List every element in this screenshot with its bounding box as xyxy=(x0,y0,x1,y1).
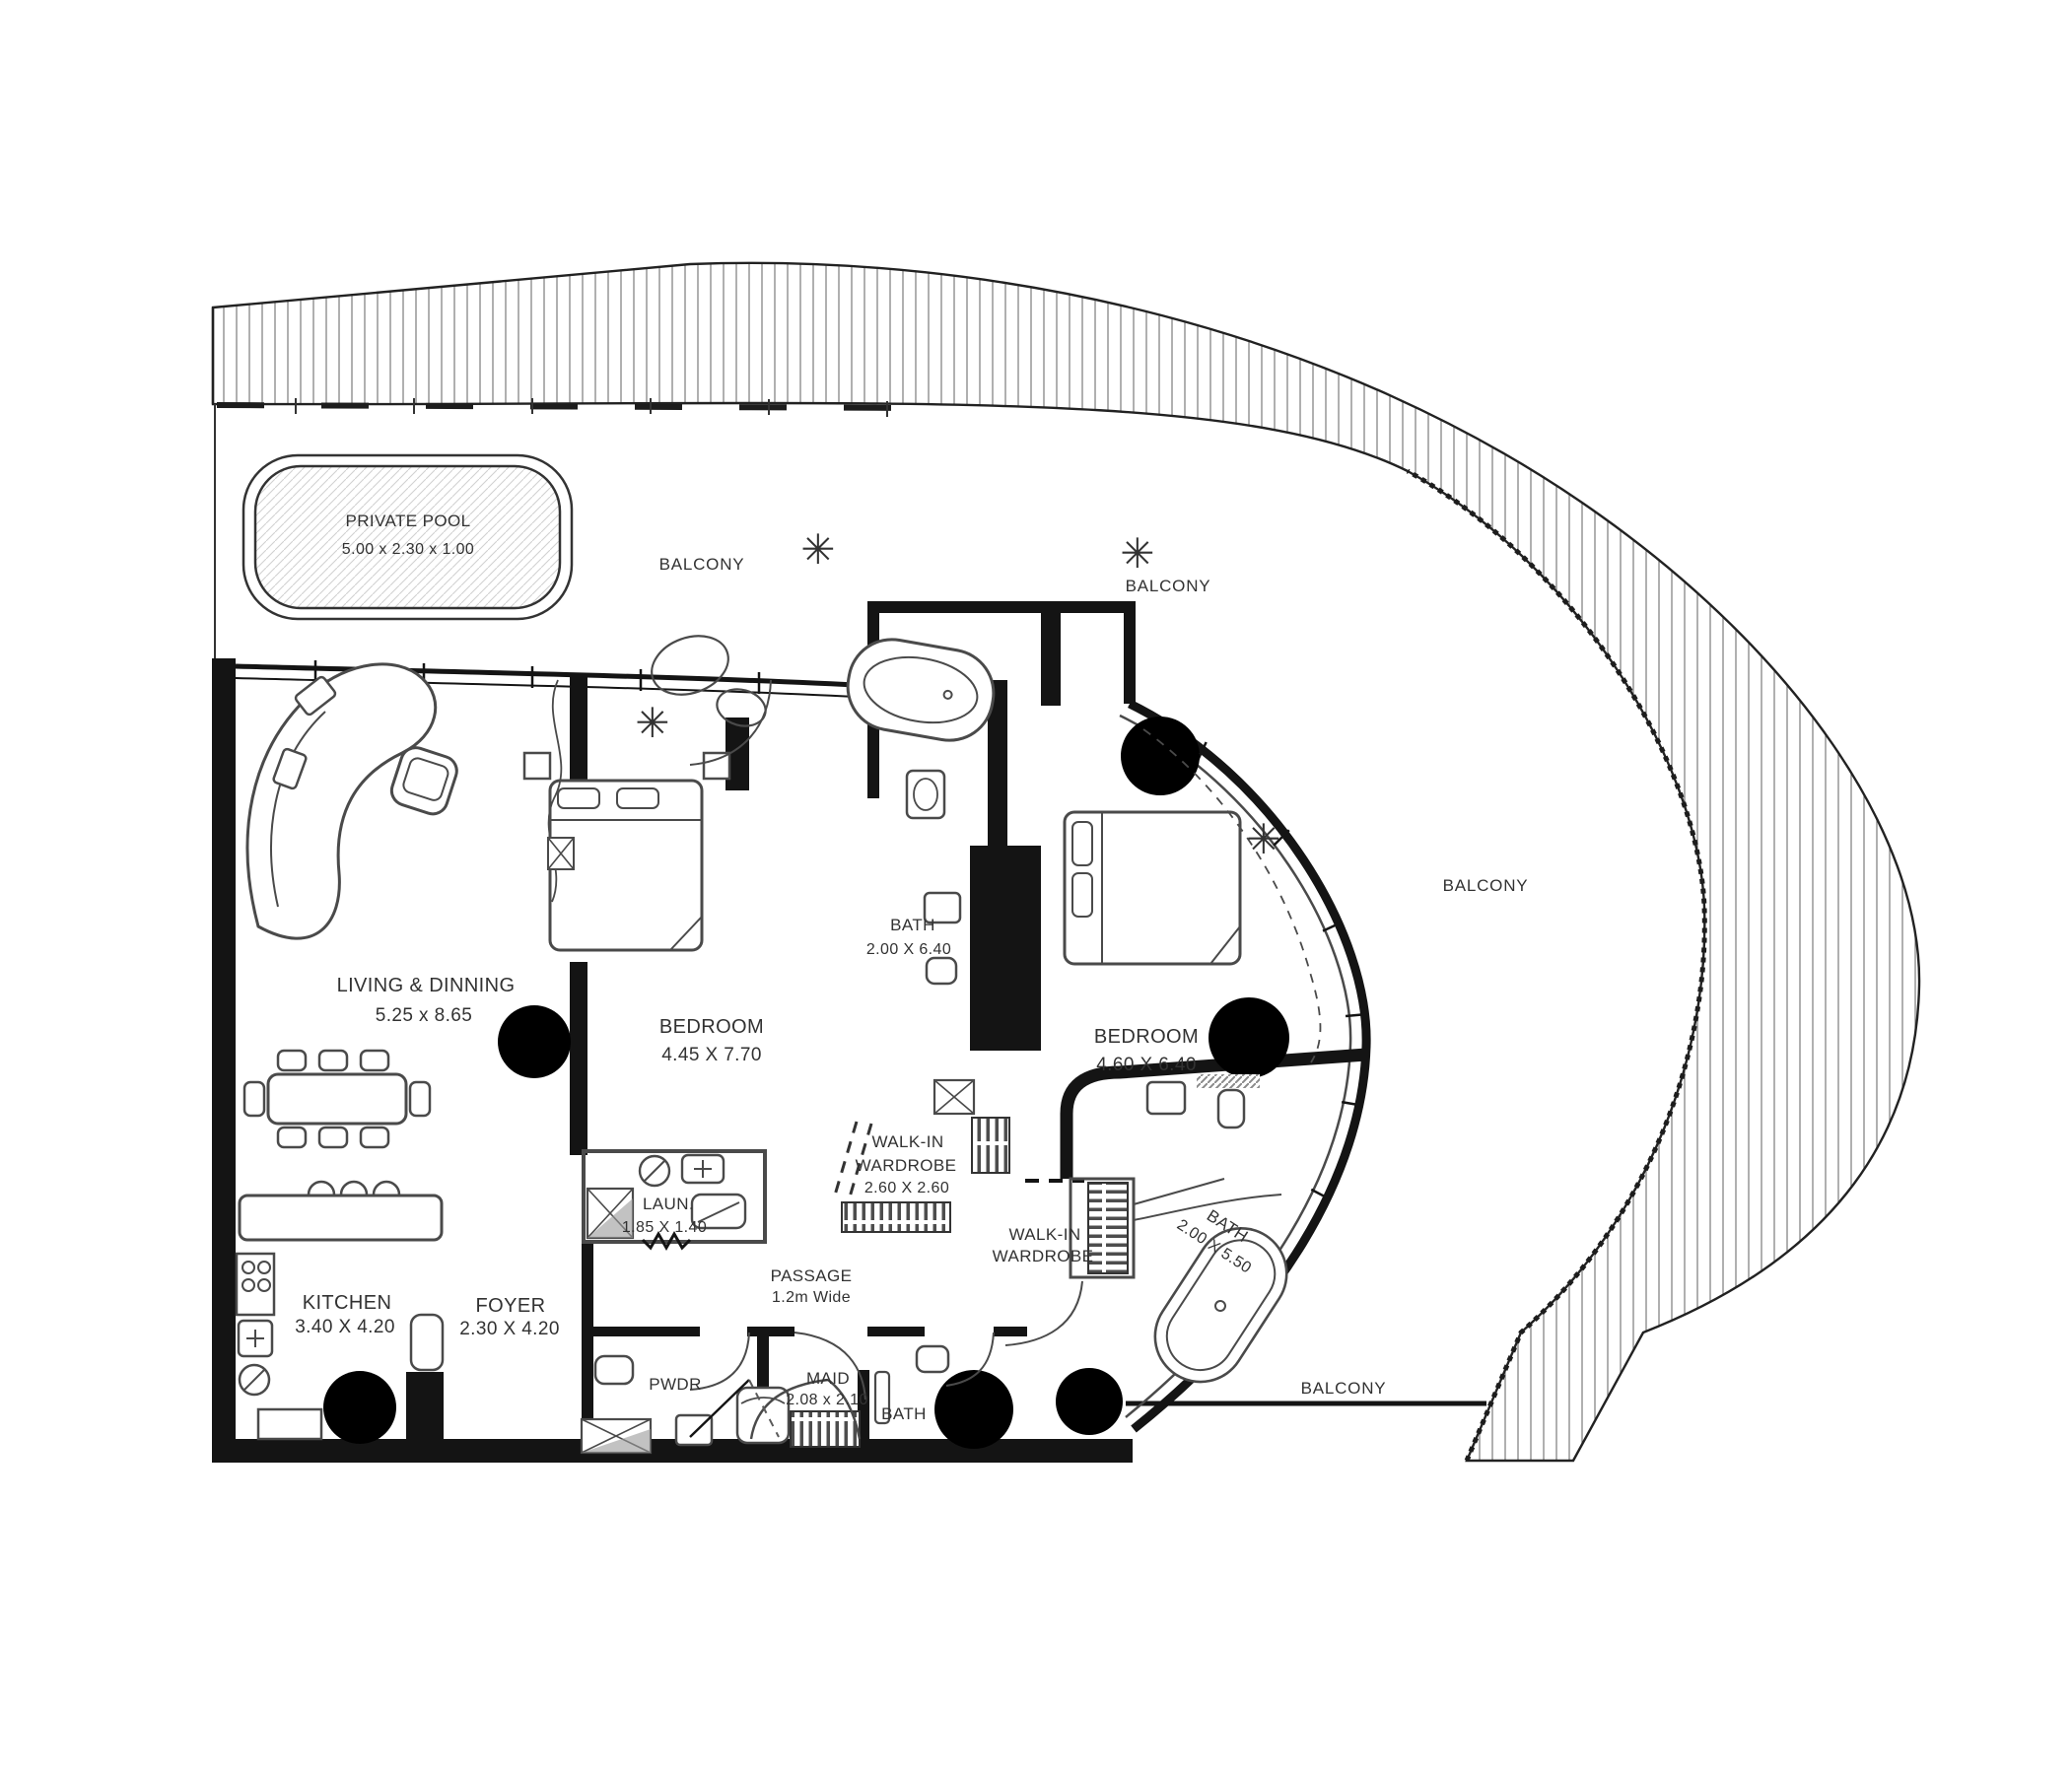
bedroom1-label: BEDROOM xyxy=(659,1016,764,1038)
bedroom2-label: BEDROOM xyxy=(1094,1026,1199,1048)
dining-table-set xyxy=(244,1051,430,1147)
pool-dims: 5.00 x 2.30 x 1.00 xyxy=(342,541,474,558)
toilet xyxy=(927,958,956,984)
toilet xyxy=(1218,1090,1244,1128)
toilet xyxy=(917,1346,948,1372)
column xyxy=(1056,1368,1123,1435)
bath2-room xyxy=(1138,1211,1304,1400)
column xyxy=(498,1005,571,1078)
laundry-label: LAUN. xyxy=(643,1195,694,1213)
floorplan-page: PRIVATE POOL 5.00 x 2.30 x 1.00 BALCONY … xyxy=(0,0,2072,1777)
balcony-label-right: BALCONY xyxy=(1443,876,1529,895)
balcony-label-bottom: BALCONY xyxy=(1301,1379,1387,1398)
bedroom2-dims: 4.60 X 6.40 xyxy=(1096,1055,1197,1075)
foyer-label: FOYER xyxy=(476,1295,546,1317)
plant-icon: ✳ xyxy=(1246,816,1281,862)
toilet xyxy=(595,1356,633,1384)
bar-stools xyxy=(309,1182,399,1195)
window-sill-hatch xyxy=(1197,1074,1260,1088)
kitchen-dims: 3.40 X 4.20 xyxy=(295,1317,395,1337)
nightstand xyxy=(704,753,729,779)
maid-dims: 2.08 x 2.10 xyxy=(786,1392,868,1408)
door-arc xyxy=(794,1333,865,1400)
maid-label: MAID xyxy=(806,1369,850,1388)
bath3-label: BATH xyxy=(881,1404,927,1423)
bedroom1-dims: 4.45 X 7.70 xyxy=(661,1045,762,1065)
bathtub xyxy=(841,633,1001,747)
column xyxy=(934,1370,1013,1449)
foyer-dims: 2.30 X 4.20 xyxy=(459,1319,560,1339)
column xyxy=(323,1371,396,1444)
maid-room xyxy=(737,1333,865,1447)
balcony-label-top-mid: BALCONY xyxy=(1126,577,1211,595)
kitchen-island xyxy=(240,1196,442,1240)
shower-box xyxy=(582,1419,651,1453)
xbox-cabinet xyxy=(548,838,574,869)
kitchen-label: KITCHEN xyxy=(303,1292,392,1314)
sink xyxy=(1147,1082,1185,1114)
freestanding-tub xyxy=(1138,1211,1304,1400)
bath1-label: BATH xyxy=(890,916,935,934)
column xyxy=(1209,997,1289,1078)
column xyxy=(1121,717,1200,795)
nightstand xyxy=(524,753,550,779)
maid-wardrobe xyxy=(791,1411,860,1447)
floorplan-drawing: PRIVATE POOL 5.00 x 2.30 x 1.00 BALCONY … xyxy=(0,0,2072,1777)
passage-label: PASSAGE xyxy=(771,1266,853,1285)
passage-dims: 1.2m Wide xyxy=(772,1289,851,1306)
wardrobe1-dims: 2.60 X 2.60 xyxy=(864,1180,949,1196)
bath1-dims: 2.00 X 6.40 xyxy=(866,941,951,958)
wardrobe2-label1: WALK-IN xyxy=(1008,1225,1080,1244)
wardrobe2-label2: WARDROBE xyxy=(993,1247,1094,1265)
wardrobe1-label1: WALK-IN xyxy=(871,1132,943,1151)
living-dims: 5.25 x 8.65 xyxy=(376,1005,472,1026)
living-room-furniture xyxy=(244,664,460,1147)
balcony-label-top-left: BALCONY xyxy=(659,555,745,574)
band-inner-wall-dashes xyxy=(217,405,927,408)
plant-icon: ✳ xyxy=(635,700,670,746)
maid-bed xyxy=(737,1388,789,1443)
wardrobe1-label2: WARDROBE xyxy=(856,1156,957,1175)
private-pool: PRIVATE POOL 5.00 x 2.30 x 1.00 xyxy=(243,455,572,619)
pool-label: PRIVATE POOL xyxy=(346,512,471,530)
plant-icon: ✳ xyxy=(1120,530,1155,577)
xbox-duct xyxy=(934,1080,974,1114)
kitchen-appliances xyxy=(237,1254,321,1439)
laundry-dims: 1.85 X 1.40 xyxy=(622,1219,707,1236)
living-label: LIVING & DINNING xyxy=(337,975,516,996)
plant-icon: ✳ xyxy=(800,526,836,573)
pwdr-label: PWDR xyxy=(649,1375,702,1394)
foyer-shaft xyxy=(411,1315,443,1370)
